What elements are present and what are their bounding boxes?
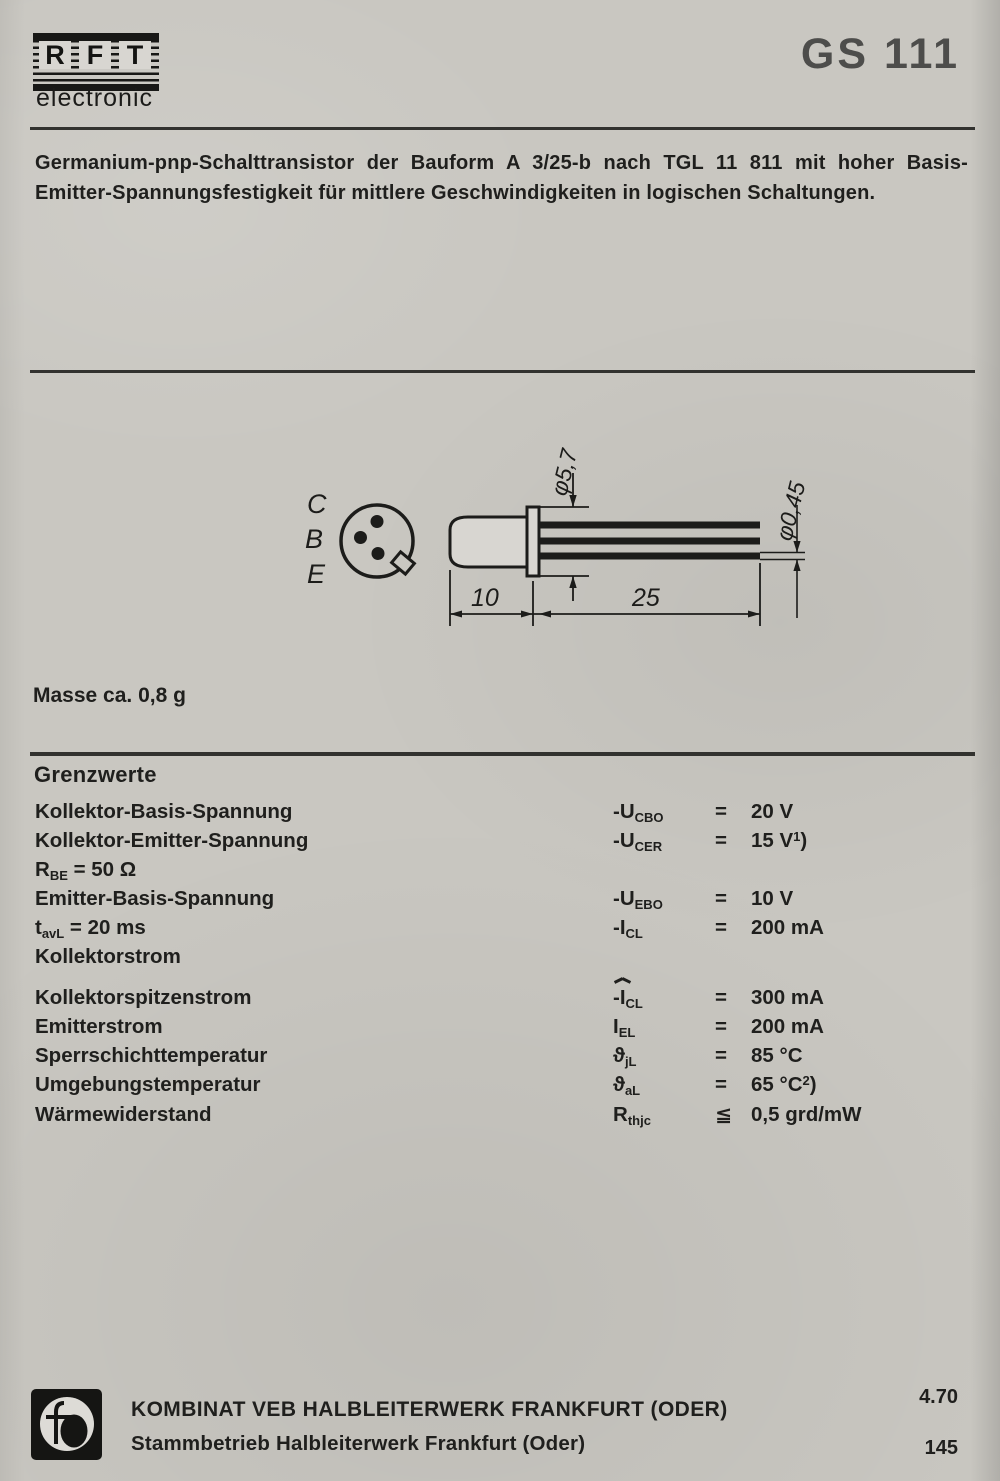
value: 65 °C2) bbox=[751, 1073, 965, 1097]
divider-rule bbox=[30, 752, 975, 756]
divider-rule bbox=[30, 370, 975, 373]
description-text: Germanium-pnp-Schalttransistor der Baufo… bbox=[35, 148, 968, 208]
table-row: Emitterstrom IEL = 200 mA bbox=[35, 1015, 965, 1044]
relation: = bbox=[715, 1044, 751, 1068]
company-line-1: KOMBINAT VEB HALBLEITERWERK FRANKFURT (O… bbox=[131, 1398, 728, 1422]
dim-arrow bbox=[521, 611, 533, 618]
side-view bbox=[450, 507, 760, 576]
table-row: Emitter-Basis-Spannung -UEBO = 10 V bbox=[35, 887, 965, 916]
product-title: GS 111 bbox=[801, 30, 960, 79]
rft-logo-letter: T bbox=[119, 41, 151, 69]
param-label: Emitter-Basis-Spannung bbox=[35, 887, 613, 912]
mass-note: Masse ca. 0,8 g bbox=[33, 684, 186, 708]
rft-logo: R F T bbox=[33, 33, 159, 91]
relation: = bbox=[715, 986, 751, 1010]
symbol bbox=[613, 945, 715, 970]
relation: = bbox=[715, 800, 751, 824]
dim-label-body-length: 10 bbox=[471, 584, 499, 612]
value: 0,5 grd/mW bbox=[751, 1103, 965, 1127]
company-line-2: Stammbetrieb Halbleiterwerk Frankfurt (O… bbox=[131, 1432, 585, 1456]
value: 200 mA bbox=[751, 1015, 965, 1039]
rft-logo-subtitle: electronic bbox=[36, 84, 153, 113]
transistor-drawing: C B E φ5,7 bbox=[280, 430, 840, 670]
table-row: tavL = 20 ms -ICL = 200 mA bbox=[35, 916, 965, 945]
circumflex-mark bbox=[615, 976, 631, 984]
relation: = bbox=[715, 916, 751, 940]
date-code: 4.70 bbox=[919, 1386, 958, 1409]
transistor-body bbox=[450, 517, 528, 567]
rft-logo-letter: R bbox=[39, 41, 71, 69]
symbol: Rthjc bbox=[613, 1103, 715, 1128]
table-row: Kollektor-Emitter-Spannung -UCER = 15 V1… bbox=[35, 829, 965, 858]
symbol: IEL bbox=[613, 1015, 715, 1040]
param-label: Kollektor-Basis-Spannung bbox=[35, 800, 613, 825]
param-label: Kollektorstrom bbox=[35, 945, 613, 970]
pin-label-e: E bbox=[307, 559, 326, 589]
relation: = bbox=[715, 1015, 751, 1039]
pin-dot-b bbox=[354, 531, 367, 544]
dim-label-flange-diameter: φ5,7 bbox=[546, 445, 583, 498]
dim-label-lead-length: 25 bbox=[631, 584, 660, 612]
symbol: -ICL bbox=[613, 916, 715, 941]
table-row: Wärmewiderstand Rthjc ≦ 0,5 grd/mW bbox=[35, 1102, 965, 1131]
rft-logo-letter: F bbox=[79, 41, 111, 69]
value: 20 V bbox=[751, 800, 965, 824]
param-label: Umgebungstemperatur bbox=[35, 1073, 613, 1098]
dim-arrow bbox=[748, 611, 760, 618]
pin-label-b: B bbox=[305, 524, 323, 554]
symbol: -UCER bbox=[613, 829, 715, 854]
table-row: Sperrschichttemperatur ϑjL = 85 °C bbox=[35, 1044, 965, 1073]
symbol bbox=[613, 858, 715, 883]
value: 15 V1) bbox=[751, 829, 965, 853]
table-row: Umgebungstemperatur ϑaL = 65 °C2) bbox=[35, 1073, 965, 1102]
relation: ≦ bbox=[715, 1102, 751, 1127]
dim-arrow bbox=[569, 576, 576, 588]
relation: = bbox=[715, 829, 751, 853]
pin-dot-e bbox=[372, 547, 385, 560]
relation: = bbox=[715, 887, 751, 911]
param-label: Kollektor-Emitter-Spannung bbox=[35, 829, 613, 854]
param-label: Wärmewiderstand bbox=[35, 1103, 613, 1128]
logo-bowl bbox=[61, 1415, 88, 1448]
lead-middle bbox=[539, 538, 760, 545]
relation: = bbox=[715, 1073, 751, 1097]
section-heading-grenzwerte: Grenzwerte bbox=[34, 762, 157, 788]
table-row: Kollektorspitzenstrom -ICL = 300 mA bbox=[35, 986, 965, 1015]
divider-rule bbox=[30, 127, 975, 130]
param-label: tavL = 20 ms bbox=[35, 916, 613, 941]
pin-label-c: C bbox=[307, 489, 327, 519]
value: 85 °C bbox=[751, 1044, 965, 1068]
dim-arrow bbox=[450, 611, 462, 618]
param-label: Kollektorspitzenstrom bbox=[35, 986, 613, 1011]
dim-label-lead-diameter: φ0,45 bbox=[771, 479, 811, 543]
param-label: RBE = 50 Ω bbox=[35, 858, 613, 883]
datasheet-page: R F T electronic GS 111 Germanium-pnp-Sc… bbox=[0, 0, 1000, 1481]
pin-dot-c bbox=[371, 515, 384, 528]
table-row: Kollektorstrom bbox=[35, 945, 965, 974]
lead-bottom bbox=[539, 553, 760, 560]
symbol: -UEBO bbox=[613, 887, 715, 912]
value: 10 V bbox=[751, 887, 965, 911]
dim-arrow bbox=[793, 560, 800, 572]
dim-arrow bbox=[539, 611, 551, 618]
table-row: Kollektor-Basis-Spannung -UCBO = 20 V bbox=[35, 800, 965, 829]
symbol: ϑjL bbox=[613, 1044, 715, 1069]
halbleiterwerk-logo bbox=[31, 1389, 102, 1460]
symbol: ϑaL bbox=[613, 1073, 715, 1098]
page-number: 145 bbox=[925, 1437, 958, 1460]
param-label: Emitterstrom bbox=[35, 1015, 613, 1040]
value: 300 mA bbox=[751, 986, 965, 1010]
pinout-view bbox=[341, 505, 414, 577]
param-label: Sperrschichttemperatur bbox=[35, 1044, 613, 1069]
grenzwerte-rows: Kollektor-Basis-Spannung -UCBO = 20 V Ko… bbox=[35, 800, 965, 1131]
table-row: RBE = 50 Ω bbox=[35, 858, 965, 887]
lead-top bbox=[539, 522, 760, 529]
value: 200 mA bbox=[751, 916, 965, 940]
transistor-flange bbox=[527, 507, 539, 576]
symbol: -ICL bbox=[613, 986, 715, 1011]
symbol: -UCBO bbox=[613, 800, 715, 825]
